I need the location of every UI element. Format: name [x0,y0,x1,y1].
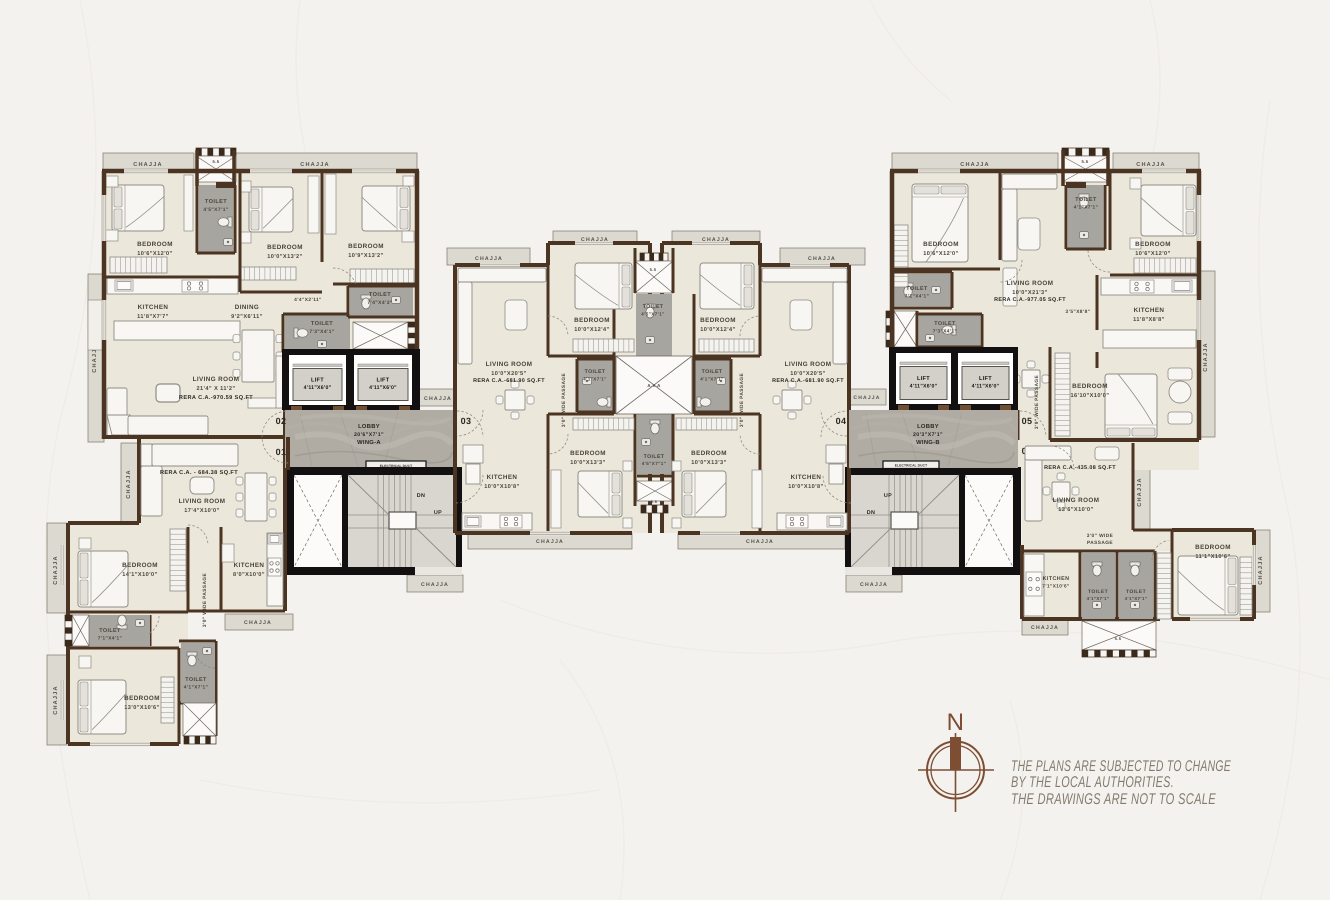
svg-text:BEDROOM: BEDROOM [691,450,727,457]
svg-text:CHAJJA: CHAJJA [1258,555,1264,585]
svg-text:3’0” WIDE PASSAGE: 3’0” WIDE PASSAGE [202,573,208,628]
svg-text:01: 01 [276,447,287,457]
svg-text:KITCHEN: KITCHEN [1043,576,1070,582]
svg-text:ELECTRICAL DUCT: ELECTRICAL DUCT [895,464,927,468]
svg-text:CHAJJA: CHAJJA [746,539,774,545]
svg-text:WING-B: WING-B [916,439,940,446]
svg-text:RERA C.A.-977.05 SQ.FT: RERA C.A.-977.05 SQ.FT [994,297,1066,303]
svg-text:4’5”X7’1”: 4’5”X7’1” [641,312,665,317]
svg-text:CHAJJA: CHAJJA [536,539,564,545]
svg-text:THE DRAWINGS ARE NOT TO SCALE: THE DRAWINGS ARE NOT TO SCALE [1011,791,1216,808]
svg-text:13’6”X10’0”: 13’6”X10’0” [1058,507,1094,513]
svg-text:CHAJJA: CHAJJA [808,256,836,262]
svg-text:10’0”X13’3”: 10’0”X13’3” [691,460,727,466]
svg-text:PASSAGE: PASSAGE [1087,540,1113,546]
svg-text:TOILET: TOILET [585,369,606,375]
svg-text:10’0”X20’5”: 10’0”X20’5” [491,371,527,377]
svg-text:CHAJJA: CHAJJA [1137,477,1143,507]
svg-text:7’1”X4’1”: 7’1”X4’1” [98,636,122,641]
svg-text:DN: DN [867,510,876,516]
svg-text:4’1”X7’1”: 4’1”X7’1” [700,377,724,382]
svg-text:04: 04 [836,416,847,426]
svg-text:10’6”X12’0”: 10’6”X12’0” [1135,251,1171,257]
svg-text:4’1”X7’1”: 4’1”X7’1” [1087,596,1110,601]
svg-text:14’1”X10’0”: 14’1”X10’0” [122,572,158,578]
svg-text:CHAJJA: CHAJJA [475,256,503,262]
svg-text:10’0”X12’4”: 10’0”X12’4” [574,327,610,333]
svg-text:BEDROOM: BEDROOM [122,562,158,569]
svg-text:DN: DN [417,493,426,499]
svg-text:10’6”X12’0”: 10’6”X12’0” [137,251,173,257]
svg-text:5.5: 5.5 [1115,636,1122,641]
svg-text:7’3”X4’1”: 7’3”X4’1” [309,329,335,335]
svg-text:4’11”X6’0”: 4’11”X6’0” [304,385,332,391]
svg-text:4’5”X7’1”: 4’5”X7’1” [203,207,229,213]
svg-text:4’5”X7”1”: 4’5”X7”1” [642,461,667,466]
svg-text:LIVING ROOM: LIVING ROOM [785,361,832,368]
svg-text:TOILET: TOILET [934,321,956,327]
svg-text:UP: UP [434,510,442,516]
svg-text:KITCHEN: KITCHEN [487,474,518,481]
svg-text:3’9” WIDE PASSAGE: 3’9” WIDE PASSAGE [1034,375,1040,430]
svg-text:RERA C.A.-681.90 SQ.FT: RERA C.A.-681.90 SQ.FT [772,378,844,384]
svg-text:TOILET: TOILET [1126,589,1146,595]
svg-text:BEDROOM: BEDROOM [1072,383,1108,390]
svg-text:17’4”X10’0”: 17’4”X10’0” [184,508,220,514]
svg-text:8’0”X10’0”: 8’0”X10’0” [233,572,265,578]
svg-text:TOILET: TOILET [205,199,227,205]
svg-text:11’1”X10’6”: 11’1”X10’6” [1195,554,1230,560]
svg-text:DINING: DINING [235,304,259,311]
svg-text:N: N [947,709,965,736]
svg-text:10’0”X10’8”: 10’0”X10’8” [484,484,520,490]
svg-text:9’2”X6’11”: 9’2”X6’11” [231,314,263,320]
svg-text:LIVING ROOM: LIVING ROOM [1053,497,1100,504]
svg-text:BEDROOM: BEDROOM [124,695,160,702]
svg-text:03: 03 [461,416,472,426]
svg-text:5.5: 5.5 [650,267,657,272]
svg-text:4’4”X2’11”: 4’4”X2’11” [294,297,322,303]
svg-text:BEDROOM: BEDROOM [923,241,959,248]
svg-text:KITCHEN: KITCHEN [234,562,265,569]
svg-text:5.5: 5.5 [212,159,219,164]
svg-text:TOILET: TOILET [1088,589,1108,595]
svg-text:CHAJJA: CHAJJA [1136,162,1166,168]
svg-text:RERA C.A.-970.59 SQ.FT: RERA C.A.-970.59 SQ.FT [179,395,253,401]
svg-text:BEDROOM: BEDROOM [570,450,606,457]
svg-text:05: 05 [1022,416,1033,426]
svg-text:BEDROOM: BEDROOM [1195,544,1231,551]
svg-text:BY THE LOCAL AUTHORITIES.: BY THE LOCAL AUTHORITIES. [1011,774,1174,791]
svg-text:RERA C.A.-435.08 SQ.FT: RERA C.A.-435.08 SQ.FT [1044,465,1116,471]
svg-text:TOILET: TOILET [702,369,723,375]
svg-text:10’0”X12’4”: 10’0”X12’4” [700,327,736,333]
svg-text:CHAJJA: CHAJJA [300,162,330,168]
svg-text:LIVING ROOM: LIVING ROOM [179,498,226,505]
svg-text:CHAJJA: CHAJJA [1031,625,1059,631]
svg-text:3’0” WIDE: 3’0” WIDE [1087,533,1114,539]
svg-text:WING-A: WING-A [357,439,381,446]
svg-text:BEDROOM: BEDROOM [348,243,384,250]
svg-text:LOBBY: LOBBY [917,423,939,430]
svg-text:UP: UP [884,493,892,499]
svg-text:10’9”X13’2”: 10’9”X13’2” [348,253,384,259]
svg-text:7’3”X4’1”: 7’3”X4’1” [933,329,957,334]
svg-text:4’11”X6’0”: 4’11”X6’0” [369,385,397,391]
svg-text:CHAJJA: CHAJJA [421,582,449,588]
svg-text:KITCHEN: KITCHEN [138,304,169,311]
svg-text:BEDROOM: BEDROOM [1135,241,1171,248]
svg-text:TOILET: TOILET [369,292,391,298]
svg-text:7’1”X10’6”: 7’1”X10’6” [1042,584,1069,589]
svg-text:RERA C.A. - 684.38 SQ.FT: RERA C.A. - 684.38 SQ.FT [160,470,238,476]
svg-text:4’1”X7’1”: 4’1”X7’1” [184,685,208,690]
svg-text:7’1”X4’1”: 7’1”X4’1” [905,294,929,299]
svg-text:LIFT: LIFT [311,378,324,384]
svg-text:11’8”X8’8”: 11’8”X8’8” [1133,317,1165,323]
svg-text:TOILET: TOILET [311,321,333,327]
svg-text:7’4”X4’3”: 7’4”X4’3” [367,300,393,306]
svg-text:4’1”X7’1”: 4’1”X7’1” [1125,596,1148,601]
svg-text:20’6”X7’1”: 20’6”X7’1” [354,432,384,438]
svg-text:11’8”X7’7”: 11’8”X7’7” [137,314,169,320]
svg-text:CHAJJA: CHAJJA [53,555,59,585]
svg-text:TOILET: TOILET [99,628,121,634]
svg-text:CHAJJA: CHAJJA [244,620,272,626]
svg-text:BEDROOM: BEDROOM [267,244,303,251]
svg-text:TOILET: TOILET [1075,197,1097,203]
svg-text:5.5: 5.5 [1081,159,1088,164]
svg-text:3’0” WIDE PASSAGE: 3’0” WIDE PASSAGE [561,373,567,428]
svg-text:10’0”X13’2”: 10’0”X13’2” [267,254,303,260]
svg-text:LIVING ROOM: LIVING ROOM [1007,280,1054,287]
svg-text:TOILET: TOILET [185,677,207,683]
svg-text:CHAJJA: CHAJJA [960,162,990,168]
svg-text:13’0”X10’6”: 13’0”X10’6” [124,705,160,711]
svg-text:4’1”X7’1”: 4’1”X7’1” [1074,205,1098,210]
svg-text:10’0”X10’8”: 10’0”X10’8” [788,484,824,490]
svg-text:LIFT: LIFT [376,378,389,384]
svg-text:4’1”X7’1”: 4’1”X7’1” [583,377,607,382]
svg-text:5.5: 5.5 [651,500,657,504]
svg-text:16’10”X10’0”: 16’10”X10’0” [1070,393,1109,399]
svg-text:CHAJJA: CHAJJA [424,396,452,402]
svg-text:LIFT: LIFT [917,376,930,382]
svg-text:KITCHEN: KITCHEN [791,474,822,481]
svg-text:TOILET: TOILET [644,454,665,460]
svg-text:4’11”X6’0”: 4’11”X6’0” [972,384,1000,390]
svg-text:THE PLANS ARE SUBJECTED TO CHA: THE PLANS ARE SUBJECTED TO CHANGE [1011,758,1231,775]
svg-text:TOILET: TOILET [643,304,664,310]
svg-text:KITCHEN: KITCHEN [1134,307,1165,314]
svg-text:BEDROOM: BEDROOM [700,317,736,324]
svg-text:CHAJJA: CHAJJA [853,395,880,401]
svg-text:A.V.A: A.V.A [647,383,661,388]
svg-text:10’6”X12’0”: 10’6”X12’0” [923,251,959,257]
svg-text:21’4” X 11’2”: 21’4” X 11’2” [196,386,235,392]
svg-text:CHAJJA: CHAJJA [126,469,132,499]
svg-text:LOBBY: LOBBY [358,423,380,430]
svg-text:CHAJJA: CHAJJA [860,582,888,588]
svg-text:BEDROOM: BEDROOM [574,317,610,324]
svg-text:CHAJJA: CHAJJA [53,685,59,715]
svg-text:10’0”X20’5”: 10’0”X20’5” [790,371,826,377]
svg-text:CHAJJA: CHAJJA [133,162,163,168]
svg-text:20’3”X7’1”: 20’3”X7’1” [913,432,943,438]
svg-text:LIVING ROOM: LIVING ROOM [486,361,533,368]
svg-text:3’5”X8’8”: 3’5”X8’8” [1066,309,1091,315]
svg-text:LIFT: LIFT [979,376,992,382]
svg-text:RERA C.A.-681.90 SQ.FT: RERA C.A.-681.90 SQ.FT [473,378,545,384]
svg-text:4’11”X6’0”: 4’11”X6’0” [910,384,938,390]
svg-text:LIVING ROOM: LIVING ROOM [193,376,240,383]
svg-text:10’0”X21’3”: 10’0”X21’3” [1012,290,1048,296]
svg-text:BEDROOM: BEDROOM [137,241,173,248]
svg-text:10’0”X13’3”: 10’0”X13’3” [570,460,606,466]
svg-text:02: 02 [276,416,287,426]
svg-text:CHAJJA: CHAJJA [1203,342,1209,372]
svg-text:TOILET: TOILET [906,286,928,292]
svg-text:3’0” WIDE PASSAGE: 3’0” WIDE PASSAGE [739,373,745,428]
